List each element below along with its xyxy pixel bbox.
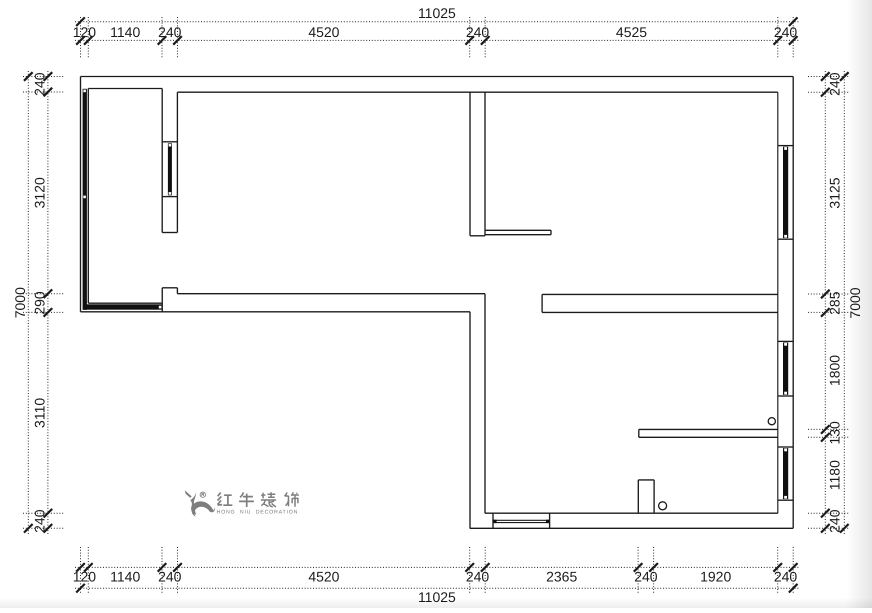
svg-text:240: 240 (158, 24, 182, 40)
svg-text:120: 120 (73, 569, 97, 585)
svg-text:240: 240 (827, 509, 843, 533)
svg-text:3125: 3125 (827, 177, 843, 208)
svg-text:130: 130 (827, 421, 843, 445)
svg-text:4525: 4525 (616, 24, 647, 40)
svg-text:3110: 3110 (32, 398, 48, 428)
svg-text:240: 240 (827, 72, 843, 96)
svg-text:240: 240 (32, 72, 48, 96)
svg-text:3120: 3120 (32, 177, 48, 208)
svg-text:1800: 1800 (827, 355, 843, 386)
svg-text:290: 290 (32, 291, 48, 315)
svg-text:120: 120 (73, 24, 97, 40)
svg-text:285: 285 (827, 291, 843, 315)
svg-text:HONG NIU DECORATION: HONG NIU DECORATION (217, 509, 299, 515)
svg-text:4520: 4520 (308, 24, 339, 40)
svg-text:240: 240 (158, 569, 182, 585)
svg-text:4520: 4520 (308, 569, 339, 585)
svg-text:2365: 2365 (546, 569, 577, 585)
svg-text:240: 240 (634, 569, 658, 585)
svg-text:240: 240 (774, 24, 798, 40)
svg-text:1140: 1140 (110, 569, 140, 585)
svg-text:240: 240 (466, 569, 490, 585)
svg-text:1920: 1920 (700, 569, 731, 585)
svg-text:1180: 1180 (827, 460, 843, 490)
svg-text:240: 240 (32, 509, 48, 533)
svg-text:240: 240 (466, 24, 490, 40)
svg-text:1140: 1140 (110, 24, 140, 40)
svg-text:7000: 7000 (12, 287, 28, 318)
svg-text:11025: 11025 (418, 5, 456, 21)
svg-text:240: 240 (774, 569, 798, 585)
